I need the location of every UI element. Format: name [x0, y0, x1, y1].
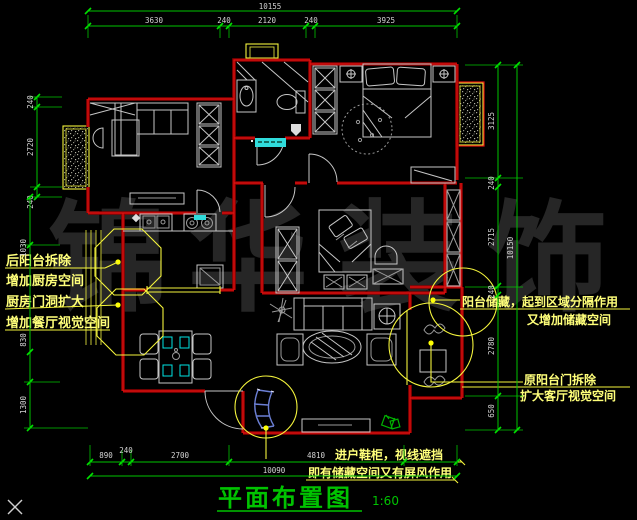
svg-text:3125: 3125 [487, 112, 496, 130]
highlighted-text-box[interactable] [251, 138, 286, 147]
entry-shoe-cabinet [254, 389, 274, 428]
svg-text:240: 240 [26, 95, 35, 109]
note-entry-2: 即有储藏空间又有屏风作用 [308, 465, 452, 480]
svg-text:240: 240 [217, 16, 231, 25]
svg-text:830: 830 [19, 333, 28, 347]
note-dining-2: 增加餐厅视觉空间 [6, 315, 110, 331]
note-balcony-storage-1: 阳台储藏，起到区域分隔作用 [462, 294, 618, 309]
svg-text:2720: 2720 [26, 137, 35, 156]
svg-text:3630: 3630 [145, 16, 164, 25]
svg-text:1300: 1300 [19, 395, 28, 414]
plan-marker [291, 124, 301, 136]
note-balcony-storage-2: 又增加储藏空间 [526, 312, 611, 327]
svg-text:240: 240 [487, 176, 496, 190]
svg-text:4810: 4810 [307, 451, 326, 460]
svg-text:10155: 10155 [259, 2, 282, 11]
placemats [163, 337, 189, 376]
bathroom-window [246, 44, 278, 58]
plant-icon [382, 415, 400, 429]
highlighted-dim [194, 215, 206, 220]
svg-text:1030: 1030 [19, 238, 28, 257]
note-entry-1: 进户鞋柜，视线遮挡 [335, 447, 443, 462]
note-living-balcony-1: 原阳台门拆除 [524, 372, 597, 387]
note-living-balcony-2: 扩大客厅视觉空间 [520, 388, 616, 403]
note-kitchen-2: 增加厨房空间 [6, 273, 84, 289]
bathroom [237, 62, 308, 165]
svg-text:10150: 10150 [506, 236, 515, 259]
svg-text:2700: 2700 [171, 451, 190, 460]
svg-text:3925: 3925 [377, 16, 395, 25]
dimension-top: 10155 3630 240 2120 240 3925 [85, 2, 460, 38]
master-bedroom [309, 64, 455, 183]
title-scale: 1:60 [372, 494, 399, 508]
lower-balcony [420, 324, 446, 386]
svg-text:2715: 2715 [487, 228, 496, 246]
svg-text:240: 240 [487, 285, 496, 299]
svg-text:890: 890 [99, 451, 113, 460]
dining-area [140, 331, 243, 429]
drawing-title: 平面布置图 1:60 [217, 484, 399, 512]
cursor-crosshair [8, 500, 22, 514]
title-text: 平面布置图 [218, 484, 353, 512]
svg-text:650: 650 [487, 404, 496, 418]
svg-text:2780: 2780 [487, 336, 496, 355]
note-kitchen-1: 后阳台拆除 [6, 253, 72, 269]
svg-text:2120: 2120 [258, 16, 277, 25]
cad-canvas[interactable]: 锦 华 装 饰 [0, 0, 637, 520]
svg-text:240: 240 [119, 446, 133, 455]
svg-text:10090: 10090 [263, 466, 286, 475]
svg-text:240: 240 [304, 16, 318, 25]
